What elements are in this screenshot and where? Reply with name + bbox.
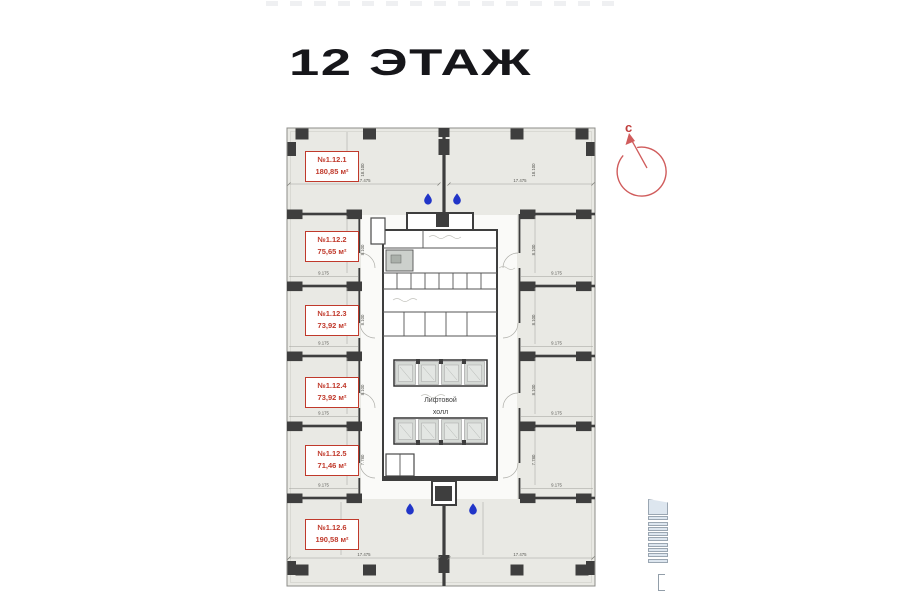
section-indicator [648,499,668,564]
room-number: №1.12.1 [317,155,346,164]
section-bar [648,527,668,531]
room-area: 180,85 м² [315,167,348,176]
floor-title: 12 ЭТАЖ [289,42,532,84]
section-bar [648,499,668,515]
room-label-1-12-5[interactable]: №1.12.5 71,46 м² [305,445,359,476]
section-bar [648,516,668,520]
dim-label: 9.175 [318,340,329,345]
room-label-1-12-2[interactable]: №1.12.2 75,65 м² [305,231,359,262]
room-number: №1.12.5 [317,449,346,458]
elevator-hall-label: Лифтовой [424,396,457,404]
section-bar [648,559,668,563]
elevator-hall-label: холл [433,409,448,416]
dim-label: 9.175 [551,410,562,415]
room-number: №1.12.6 [317,523,346,532]
dim-label: 17.475 [513,178,527,183]
dim-label: 18.100 [360,163,365,177]
dim-label: 17.475 [513,552,527,557]
compass-circle [617,147,666,196]
dim-label: 17.475 [357,178,371,183]
dim-label: 9.175 [551,482,562,487]
dim-label: 9.175 [318,270,329,275]
dim-label: 7.780 [531,454,536,465]
top-artifact-strip [266,1,616,6]
section-bar [648,543,668,547]
room-area: 190,58 м² [315,535,348,544]
room-number: №1.12.3 [317,309,346,318]
section-bar [648,532,668,536]
dim-label: 8.100 [360,384,365,395]
section-bar [648,537,668,541]
dim-label: 8.100 [531,244,536,255]
dim-label: 7.780 [360,454,365,465]
room-number: №1.12.4 [317,381,346,390]
room-number: №1.12.2 [317,235,346,244]
dim-label: 17.475 [357,552,371,557]
compass-north-label: с [625,120,632,135]
room-area: 73,92 м² [318,393,347,402]
dim-label: 9.175 [318,482,329,487]
compass: с [597,110,683,212]
room-label-1-12-4[interactable]: №1.12.4 73,92 м² [305,377,359,408]
dim-label: 9.175 [318,410,329,415]
room-label-1-12-3[interactable]: №1.12.3 73,92 м² [305,305,359,336]
building-core: Лифтовой холл [371,212,497,505]
dim-label: 8.100 [531,384,536,395]
section-bar [648,522,668,526]
room-area: 73,92 м² [318,321,347,330]
compass-arrow [631,139,647,168]
dim-label: 18.100 [531,163,536,177]
section-bar [648,553,668,557]
dim-label: 9.175 [551,340,562,345]
bracket-mark [658,574,665,591]
dim-label: 9.175 [551,270,562,275]
room-area: 75,65 м² [318,247,347,256]
dim-label: 8.100 [360,314,365,325]
floor-plan: Лифтовой холл [283,118,599,590]
room-area: 71,46 м² [318,461,347,470]
section-bar [648,548,668,552]
room-label-1-12-1[interactable]: №1.12.1 180,85 м² [305,151,359,182]
dim-label: 8.100 [531,314,536,325]
room-label-1-12-6[interactable]: №1.12.6 190,58 м² [305,519,359,550]
dim-label: 8.100 [360,244,365,255]
